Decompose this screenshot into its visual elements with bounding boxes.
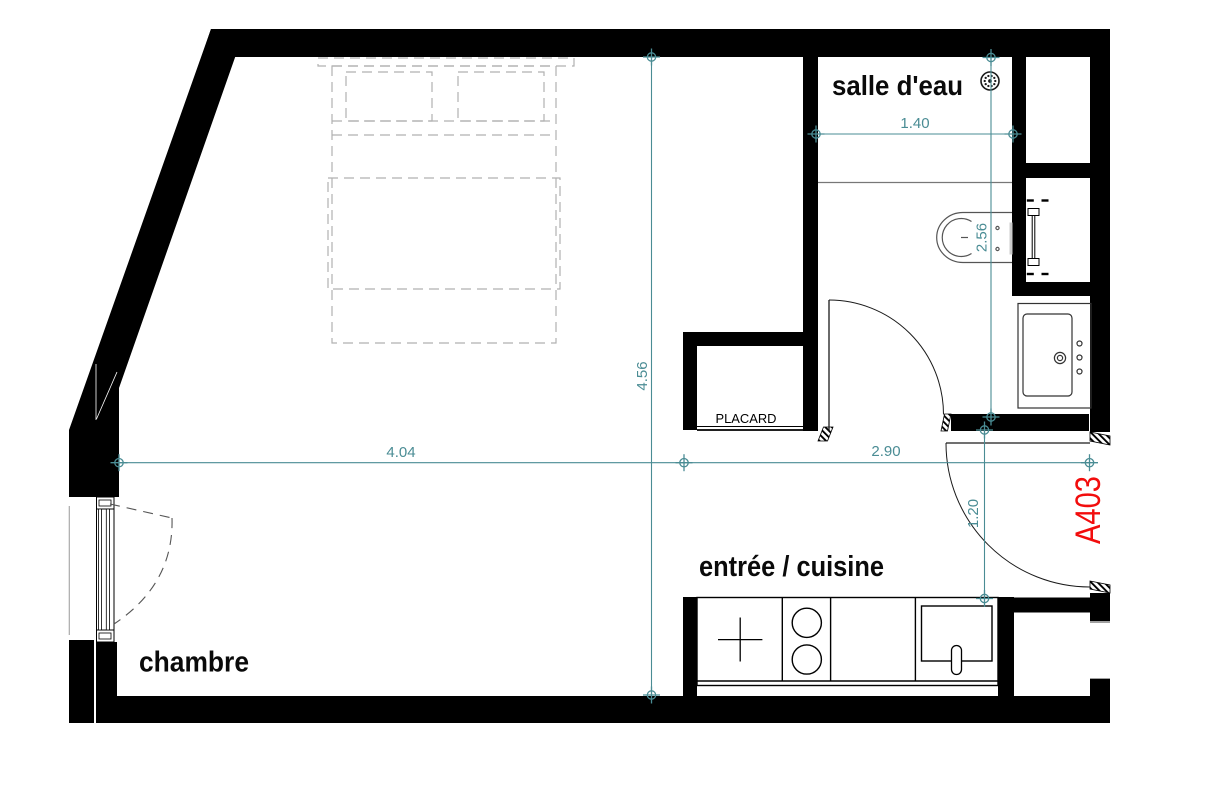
svg-text:4.56: 4.56 [634, 361, 651, 390]
svg-text:chambre: chambre [139, 647, 249, 679]
svg-text:entrée / cuisine: entrée / cuisine [699, 551, 884, 583]
svg-text:A403: A403 [1069, 476, 1108, 544]
svg-text:2.90: 2.90 [871, 443, 900, 460]
svg-text:1.40: 1.40 [900, 115, 929, 132]
svg-text:salle d'eau: salle d'eau [832, 70, 963, 101]
svg-text:2.56: 2.56 [974, 223, 991, 252]
svg-text:1.20: 1.20 [965, 499, 982, 528]
svg-text:PLACARD: PLACARD [716, 411, 777, 426]
svg-text:4.04: 4.04 [386, 444, 415, 461]
